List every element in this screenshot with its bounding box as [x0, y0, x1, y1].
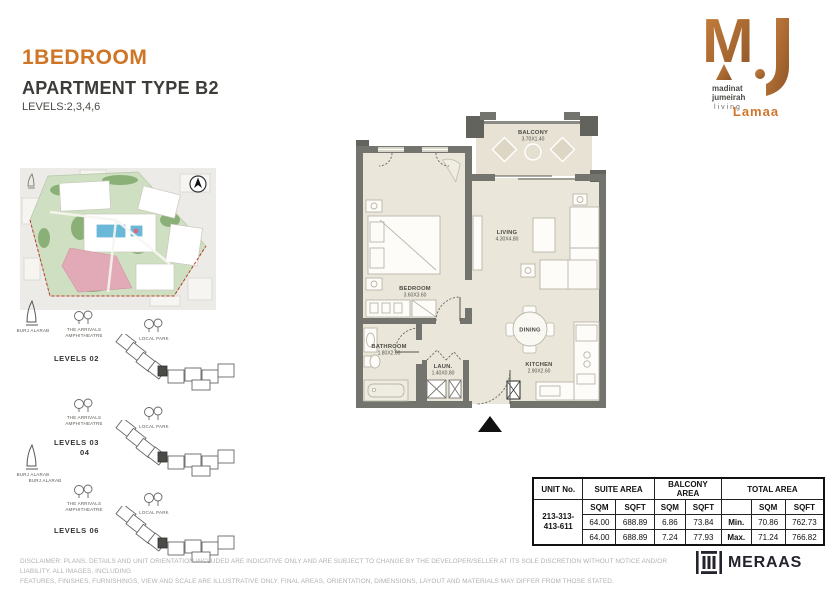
svg-text:1.40X0.80: 1.40X0.80 — [432, 371, 455, 377]
amphitheatre-trees-icon — [72, 310, 96, 326]
col-unit-no: UNIT No. — [533, 478, 583, 500]
building-footprint — [96, 334, 244, 392]
highlighted-unit — [158, 366, 167, 376]
area-table: UNIT No. SUITE AREA BALCONY AREA TOTAL A… — [532, 477, 825, 546]
svg-text:madinat: madinat — [712, 84, 743, 93]
unit-number: 213-313-413-611 — [533, 500, 583, 546]
svg-text:1.80X2.60: 1.80X2.60 — [378, 351, 401, 357]
col-total-area: TOTAL AREA — [721, 478, 824, 500]
floor-plan: BALCONY 3.70X1.40 LIVING 4.30X4.80 BEDRO… — [340, 112, 620, 451]
page-title: 1BEDROOM — [22, 46, 147, 70]
svg-text:jumeirah: jumeirah — [711, 93, 745, 102]
level-label: LEVELS 06 — [54, 526, 99, 546]
svg-text:3.70X1.40: 3.70X1.40 — [522, 137, 545, 143]
project-name: Lamaa — [700, 104, 812, 119]
site-masterplan-map — [20, 168, 216, 315]
highlighted-unit — [158, 538, 167, 548]
room-label-bedroom: BEDROOM — [399, 286, 431, 292]
brochure-page: 1BEDROOM APARTMENT TYPE B2 LEVELS:2,3,4,… — [0, 0, 825, 600]
building-footprint — [96, 506, 244, 564]
svg-text:4.30X4.80: 4.30X4.80 — [496, 237, 519, 243]
highlighted-unit — [158, 452, 167, 462]
burj-label: BURJ ALARAB — [26, 478, 64, 484]
room-label-dining: DINING — [519, 328, 541, 334]
level-diagram-02: BURJ ALARAB THE ARRIVALSAMPHITHEATRE LOC… — [14, 296, 249, 392]
room-label-laundry: LAUN. — [434, 364, 453, 370]
svg-text:2.90X2.60: 2.90X2.60 — [528, 369, 551, 375]
level-diagram-06: BURJ ALARAB THE ARRIVALSAMPHITHEATRE LOC… — [14, 470, 249, 566]
amphitheatre-trees-icon — [72, 484, 96, 500]
room-label-balcony: BALCONY — [518, 130, 548, 136]
meraas-icon — [696, 551, 722, 574]
apartment-type-subtitle: APARTMENT TYPE B2 — [22, 78, 219, 99]
laundry-units — [427, 380, 461, 398]
armchair — [533, 218, 555, 252]
amphitheatre-trees-icon — [72, 398, 96, 414]
meraas-wordmark: MERAAS — [728, 554, 802, 572]
entry-cabinet — [507, 381, 520, 399]
svg-text:M: M — [702, 7, 754, 76]
room-label-living: LIVING — [497, 230, 518, 236]
col-suite-area: SUITE AREA — [583, 478, 654, 500]
level-label: LEVELS 0304 — [54, 438, 99, 458]
col-balcony-area: BALCONY AREA — [654, 478, 721, 500]
tv-unit — [473, 216, 482, 270]
entrance-marker-triangle — [478, 416, 502, 432]
burj-label: BURJ ALARAB — [14, 328, 52, 334]
local-park-trees-icon — [142, 318, 166, 334]
meraas-logo: MERAAS — [696, 551, 802, 574]
wardrobe — [366, 300, 436, 317]
svg-text:3.60X3.60: 3.60X3.60 — [404, 293, 427, 299]
level-label: LEVELS 02 — [54, 354, 99, 374]
disclaimer: DISCLAIMER: PLANS, DETAILS AND UNIT ORIE… — [20, 557, 685, 587]
burj-al-arab-icon — [24, 444, 40, 472]
levels-line: LEVELS:2,3,4,6 — [22, 101, 100, 113]
area-table-wrap: UNIT No. SUITE AREA BALCONY AREA TOTAL A… — [532, 477, 825, 546]
burj-al-arab-icon — [24, 300, 40, 328]
room-label-bathroom: BATHROOM — [371, 344, 406, 350]
room-label-kitchen: KITCHEN — [525, 362, 552, 368]
bed — [368, 216, 440, 274]
